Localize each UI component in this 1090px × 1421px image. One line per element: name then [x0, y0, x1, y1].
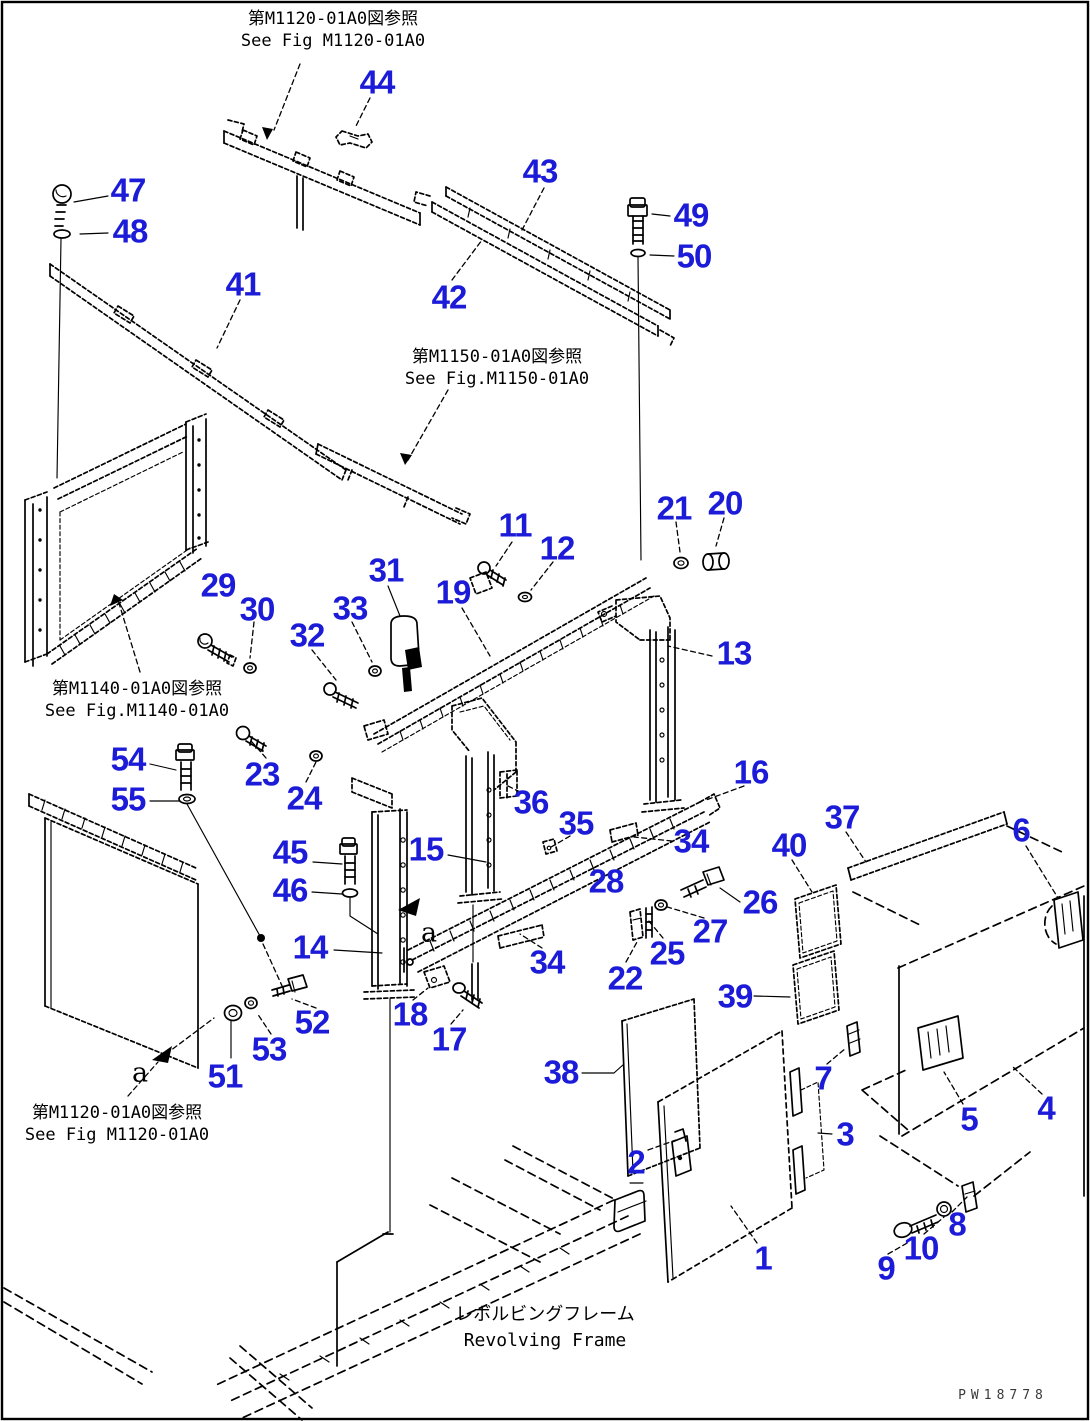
rail-16-28 — [404, 794, 720, 972]
latch-6 — [1045, 892, 1083, 948]
parts-diagram-page: 4447484349504142111221203119293033321316… — [0, 0, 1090, 1421]
bolt-29-washer-30 — [198, 634, 256, 673]
ref-note-m1120-bottom: 第M1120-01A0図参照 See Fig M1120-01A0 — [25, 1102, 209, 1146]
rail-m1150 — [316, 444, 470, 524]
revolving-frame — [4, 1146, 646, 1420]
panel-3-strip-7 — [790, 1022, 860, 1194]
bolts-51-52-53 — [225, 975, 308, 1058]
latch-5 — [862, 1016, 963, 1130]
rail-42-43 — [414, 187, 674, 346]
panels-39-40 — [793, 885, 841, 1024]
ref-note-en: See Fig.M1140-01A0 — [45, 700, 229, 722]
ref-note-en: See Fig M1120-01A0 — [241, 30, 425, 52]
parts-25-26-27-22 — [630, 867, 724, 940]
drawing-number: PW18778 — [958, 1388, 1048, 1403]
ref-note-jp: 第M1120-01A0図参照 — [25, 1102, 209, 1124]
bolt-11-washer-12 — [470, 562, 532, 602]
bolt-17-bracket-18 — [424, 966, 482, 1008]
panel-4 — [898, 886, 1084, 1196]
ref-note-m1140: 第M1140-01A0図参照 See Fig.M1140-01A0 — [45, 678, 229, 722]
brackets-34-35-36 — [472, 770, 638, 1000]
left-door-panel — [29, 794, 198, 1068]
washer-21-collar-20 — [674, 553, 729, 570]
ref-note-en: See Fig M1120-01A0 — [25, 1124, 209, 1146]
ref-note-en: See Fig.M1150-01A0 — [405, 368, 589, 390]
rail-41 — [50, 264, 346, 480]
caption-jp: レボルビングフレーム — [455, 1302, 634, 1328]
pillar-14 — [352, 778, 420, 1232]
radiator-frame — [25, 414, 208, 666]
top-left-rail — [224, 120, 420, 230]
ref-note-m1150: 第M1150-01A0図参照 See Fig.M1150-01A0 — [405, 346, 589, 390]
damper-31 — [391, 616, 422, 692]
bolt-32-washer-33 — [324, 666, 381, 708]
ref-note-jp: 第M1140-01A0図参照 — [45, 678, 229, 700]
panel-37 — [848, 812, 1062, 925]
reference-arrows — [110, 64, 448, 1096]
ref-note-jp: 第M1120-01A0図参照 — [241, 8, 425, 30]
leader-lines — [74, 98, 1058, 1254]
parts-8-9-10 — [880, 1136, 1030, 1240]
bolt-47-washer-48 — [53, 185, 71, 478]
bolt-23-washer-24 — [237, 727, 323, 762]
bolt-49-washer-50 — [628, 198, 647, 560]
door-1-hinge-2 — [630, 1031, 792, 1282]
figure-caption: レボルビングフレーム Revolving Frame — [455, 1302, 634, 1354]
pillar-13 — [598, 596, 684, 812]
bracket-44 — [336, 131, 372, 148]
caption-en: Revolving Frame — [455, 1328, 634, 1354]
ref-note-jp: 第M1150-01A0図参照 — [405, 346, 589, 368]
ref-note-m1120-top: 第M1120-01A0図参照 See Fig M1120-01A0 — [241, 8, 425, 52]
